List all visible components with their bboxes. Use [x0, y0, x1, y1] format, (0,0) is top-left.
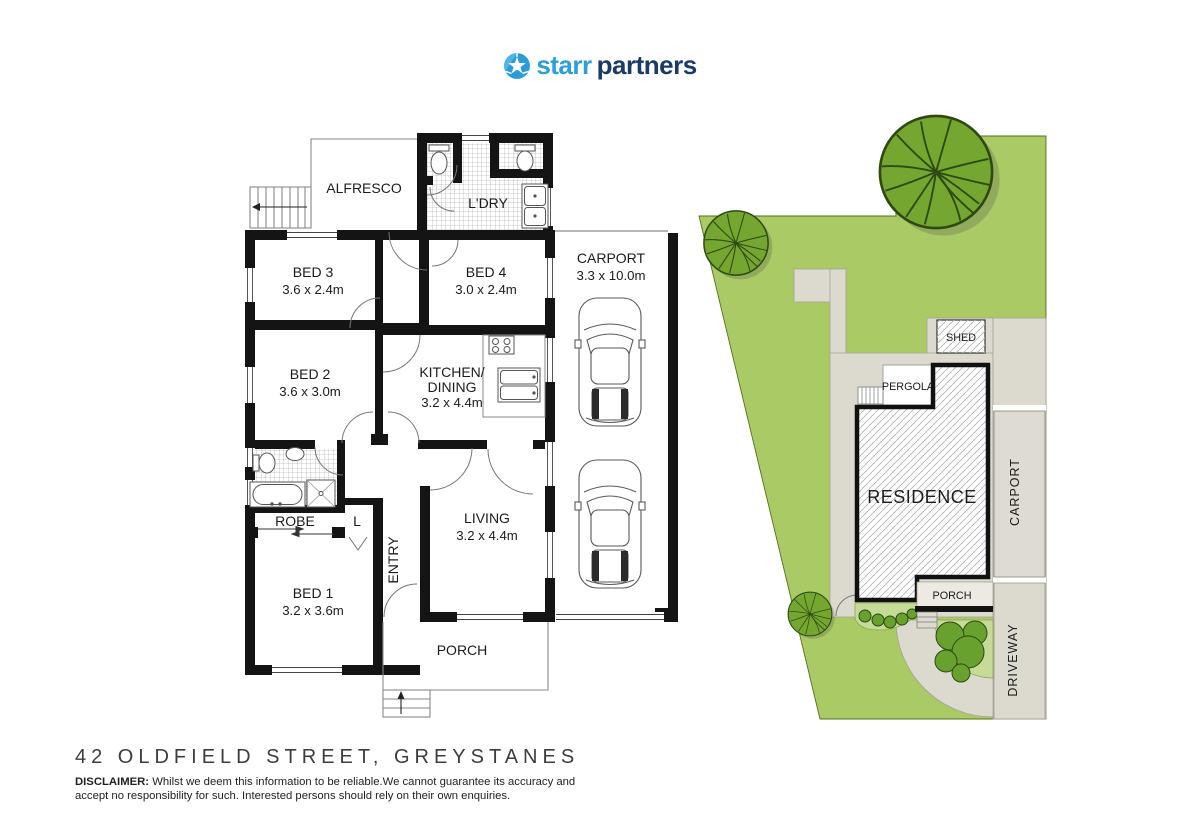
shower-icon [307, 480, 335, 507]
brand-logo: starrpartners [0, 50, 1200, 81]
bed4-label: BED 4 [466, 264, 507, 280]
living-dims: 3.2 x 4.4m [456, 528, 518, 543]
living-label: LIVING [464, 510, 510, 526]
bed2-label: BED 2 [290, 366, 331, 382]
bed4-dims: 3.0 x 2.4m [455, 282, 517, 297]
carport-area [555, 231, 668, 588]
kitchen-fixtures [483, 335, 545, 417]
carport-dims: 3.3 x 10.0m [577, 268, 646, 283]
toilet-icon [259, 453, 275, 473]
site-driveway-label: DRIVEWAY [1006, 623, 1020, 696]
toilet-icon [515, 145, 535, 151]
bed1-dims: 3.2 x 3.6m [282, 603, 344, 618]
sink-icon [498, 368, 540, 402]
bed1-label: BED 1 [293, 585, 334, 601]
disclaimer-label: DISCLAIMER: [75, 776, 149, 788]
toilet-icon [429, 145, 449, 151]
disclaimer: DISCLAIMER: Whilst we deem this informat… [75, 776, 635, 803]
residence-label: RESIDENCE [867, 487, 977, 507]
floor-plan: ALFRESCO [245, 133, 678, 717]
driveway-gap [993, 577, 1046, 583]
brand-first: starr [536, 50, 591, 81]
site-plan: SHED PERGOLA RESIDENCE PORCH CARPORT DRI… [699, 116, 1046, 719]
ldry-label: L'DRY [468, 195, 508, 211]
disclaimer-line1: Whilst we deem this information to be re… [152, 776, 575, 788]
site-carport-label: CARPORT [1008, 458, 1022, 526]
toilet-icon [431, 152, 447, 174]
bed3-label: BED 3 [293, 264, 334, 280]
laundry-tub-icon [522, 184, 548, 228]
carport-label: CARPORT [577, 250, 646, 266]
room-labels: L'DRY BED 3 3.6 x 2.4m BED 4 3.0 x 2.4m … [275, 195, 645, 658]
bed3-dims: 3.6 x 2.4m [282, 282, 344, 297]
brand-second: partners [597, 50, 697, 81]
porch-label: PORCH [437, 642, 488, 658]
robe-label: ROBE [275, 513, 315, 529]
carport-gap [993, 405, 1046, 411]
bed2-dims: 3.6 x 3.0m [279, 384, 341, 399]
shed-label: SHED [946, 332, 976, 344]
plan-drawing: SHED PERGOLA RESIDENCE PORCH CARPORT DRI… [0, 0, 1200, 822]
toilet-icon [517, 151, 533, 171]
site-shed: SHED [937, 320, 985, 353]
kitchen-label2: DINING [428, 379, 477, 395]
kitchen-dims: 3.2 x 4.4m [421, 395, 483, 410]
alfresco-label: ALFRESCO [326, 180, 402, 196]
site-porch-label: PORCH [933, 590, 972, 602]
basin-icon [286, 448, 304, 461]
stove-icon [489, 336, 514, 354]
disclaimer-line2: accept no responsibility for such. Inter… [75, 790, 635, 804]
property-address: 42 OLDFIELD STREET, GREYSTANES [75, 746, 635, 769]
linen-label: L [353, 513, 361, 529]
footer: 42 OLDFIELD STREET, GREYSTANES DISCLAIME… [75, 746, 635, 803]
floorplan-sheet: SHED PERGOLA RESIDENCE PORCH CARPORT DRI… [0, 0, 1200, 822]
starr-partners-logo-icon [503, 52, 531, 80]
pergola-label: PERGOLA [882, 381, 935, 393]
entry-label: ENTRY [385, 536, 401, 584]
kitchen-label1: KITCHEN/ [419, 364, 484, 380]
